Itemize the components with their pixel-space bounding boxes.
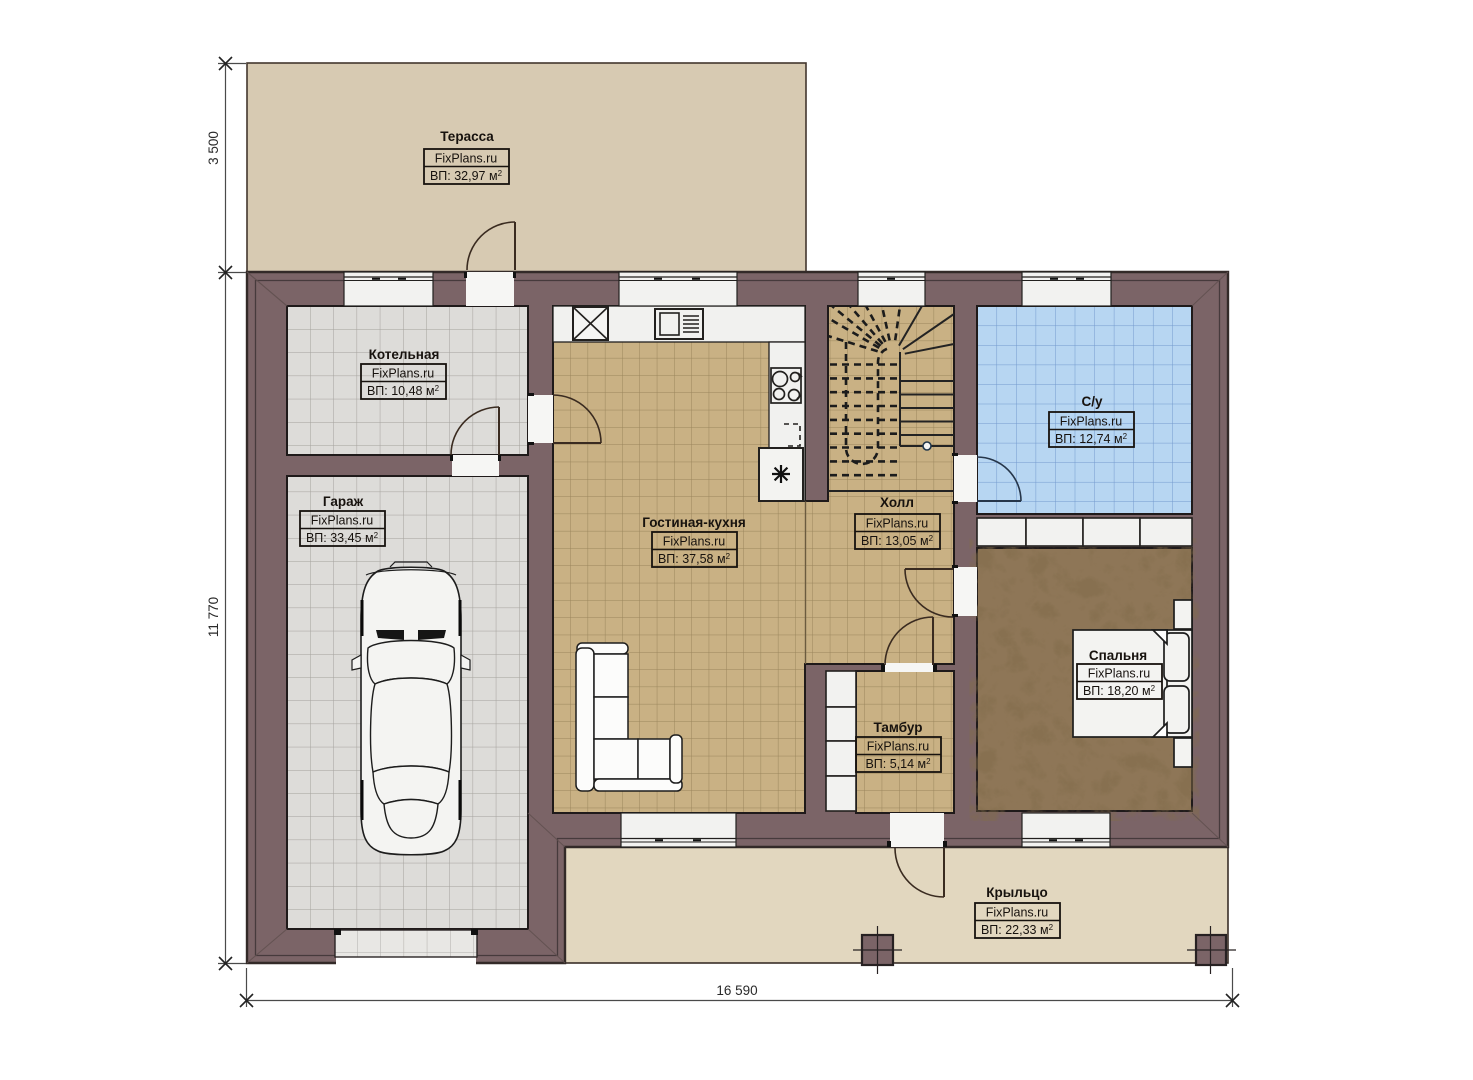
svg-text:ВП: 18,20 м2: ВП: 18,20 м2 bbox=[1083, 684, 1156, 698]
svg-text:FixPlans.ru: FixPlans.ru bbox=[1088, 667, 1151, 681]
svg-text:ВП: 5,14 м2: ВП: 5,14 м2 bbox=[865, 757, 931, 771]
svg-text:FixPlans.ru: FixPlans.ru bbox=[986, 906, 1049, 920]
svg-text:ВП: 12,74 м2: ВП: 12,74 м2 bbox=[1055, 432, 1128, 446]
svg-text:ВП: 13,05 м2: ВП: 13,05 м2 bbox=[861, 534, 934, 548]
svg-text:Гараж: Гараж bbox=[323, 494, 364, 509]
svg-text:Тамбур: Тамбур bbox=[874, 720, 923, 735]
svg-text:FixPlans.ru: FixPlans.ru bbox=[866, 517, 929, 531]
svg-text:Спальня: Спальня bbox=[1089, 648, 1147, 663]
svg-text:Терасса: Терасса bbox=[440, 129, 494, 144]
svg-text:С/у: С/у bbox=[1081, 394, 1103, 409]
svg-text:FixPlans.ru: FixPlans.ru bbox=[663, 535, 726, 549]
svg-text:FixPlans.ru: FixPlans.ru bbox=[867, 740, 930, 754]
svg-text:FixPlans.ru: FixPlans.ru bbox=[372, 367, 435, 381]
svg-text:FixPlans.ru: FixPlans.ru bbox=[435, 152, 498, 166]
svg-text:Гостиная-кухня: Гостиная-кухня bbox=[642, 515, 745, 530]
svg-text:FixPlans.ru: FixPlans.ru bbox=[311, 514, 374, 528]
svg-text:3 500: 3 500 bbox=[206, 131, 221, 165]
svg-text:ВП: 10,48 м2: ВП: 10,48 м2 bbox=[367, 384, 440, 398]
svg-text:Холл: Холл bbox=[880, 495, 914, 510]
svg-text:Котельная: Котельная bbox=[369, 347, 440, 362]
svg-text:ВП: 33,45 м2: ВП: 33,45 м2 bbox=[306, 531, 379, 545]
svg-text:ВП: 22,33 м2: ВП: 22,33 м2 bbox=[981, 923, 1054, 937]
svg-text:Крыльцо: Крыльцо bbox=[986, 885, 1047, 900]
svg-text:ВП: 37,58 м2: ВП: 37,58 м2 bbox=[658, 552, 731, 566]
svg-text:11 770: 11 770 bbox=[206, 597, 221, 637]
svg-text:FixPlans.ru: FixPlans.ru bbox=[1060, 415, 1123, 429]
svg-text:ВП: 32,97 м2: ВП: 32,97 м2 bbox=[430, 169, 503, 183]
svg-text:16 590: 16 590 bbox=[716, 983, 757, 998]
